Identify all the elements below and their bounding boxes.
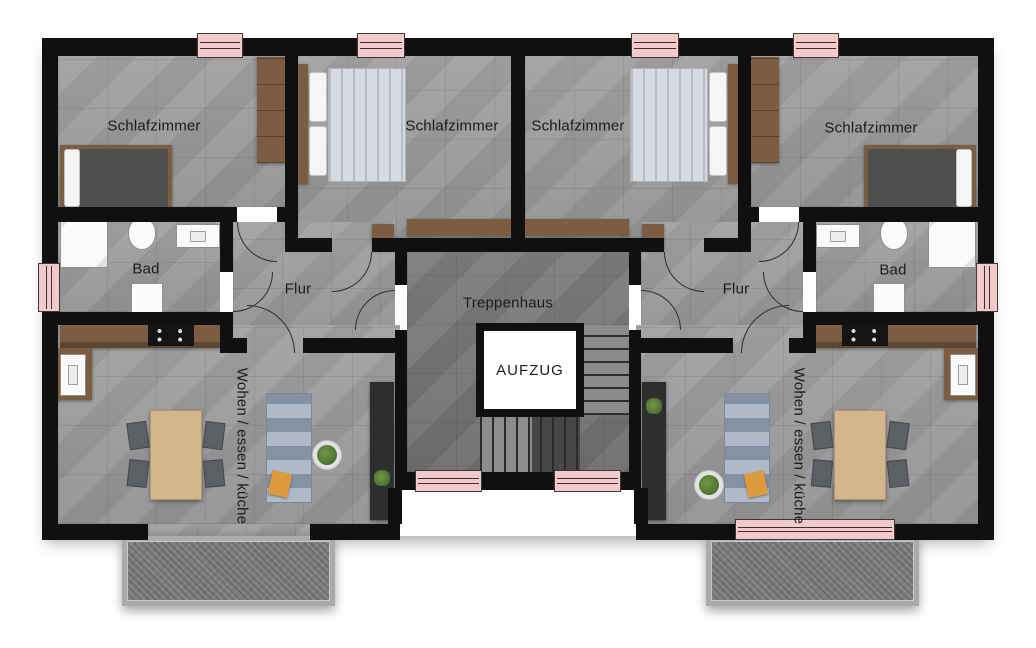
door-arc-living-left (247, 305, 295, 353)
wall-stairwell-bottom-b (482, 472, 554, 490)
dresser-right (525, 219, 629, 236)
room-label-bedroom-left-inner: Schlafzimmer (405, 118, 498, 135)
window-balcony-right (735, 519, 895, 540)
wall-connector-right (634, 488, 648, 524)
wall-connector-left (388, 488, 402, 524)
stairs-lower-flight (480, 415, 580, 472)
wall-bedroom-left-outer-bottom-a (42, 207, 237, 222)
window-top-2 (357, 33, 405, 58)
chair-left-1 (126, 421, 150, 451)
wall-stairwell-left-a (395, 252, 407, 285)
door-arc-living-right (741, 305, 789, 353)
wall-bedroom-right-outer-bottom-b (799, 207, 994, 222)
wall-bedroom-left-outer-bottom-b (277, 207, 298, 222)
double-bed-right-pillow-1 (709, 72, 727, 122)
wall-bedrooms-center-divider (511, 56, 525, 238)
sink-right (816, 224, 860, 248)
room-label-bath-right: Bad (879, 262, 906, 279)
wall-bottom-right-a (636, 524, 735, 540)
floor-plan: AUFZUG (0, 0, 1036, 648)
double-bed-right-mattress (630, 68, 708, 182)
wall-bath-right-bottom (803, 312, 994, 325)
double-bed-right-headboard (728, 64, 738, 184)
sideboard-plant-left (374, 470, 390, 486)
double-bed-right-pillow-2 (709, 126, 727, 176)
wall-top (42, 38, 994, 56)
dining-table-left (150, 410, 202, 500)
washing-machine-right (873, 283, 905, 314)
room-label-bedroom-right-inner: Schlafzimmer (531, 118, 624, 135)
cooktop-right (842, 323, 888, 346)
kitchen-sink-right (950, 354, 976, 396)
wall-bedrooms-inner-bottom-c (704, 238, 738, 252)
window-top-1 (197, 33, 243, 58)
wall-bottom-left-a (42, 524, 148, 540)
wall-bottom-left-b (310, 524, 400, 540)
chair-left-2 (127, 459, 150, 488)
room-label-hall-left: Flur (285, 281, 312, 298)
chair-right-2 (887, 459, 910, 488)
wall-hall-living-right-main (636, 338, 733, 353)
wall-stairwell-right-a (629, 252, 641, 285)
cooktop-left (148, 323, 194, 346)
wall-hall-living-right-stub (789, 338, 803, 353)
dining-table-right (834, 410, 886, 500)
elevator-label: AUFZUG (484, 331, 576, 409)
wardrobe-right (749, 57, 779, 163)
door-arc-bedroom-right-outer (759, 222, 799, 262)
shower-left (60, 216, 108, 268)
single-bed-left-pillow (64, 149, 80, 207)
shower-right (928, 216, 976, 268)
double-bed-left-mattress (328, 68, 406, 182)
double-bed-left-headboard (298, 64, 308, 184)
chair-right-3 (810, 421, 833, 450)
chair-left-3 (202, 421, 225, 450)
double-bed-left-pillow-1 (309, 72, 327, 122)
room-floor-living-left (58, 325, 400, 524)
wall-hall-living-left-stub (233, 338, 247, 353)
chair-right-4 (811, 459, 833, 488)
sink-left (176, 224, 220, 248)
stairs-upper-flight (582, 325, 629, 415)
wardrobe-left (257, 57, 287, 163)
door-arc-entry-left (355, 290, 395, 330)
room-label-bedroom-right-outer: Schlafzimmer (824, 120, 917, 137)
door-arc-bedroom-right-inner (664, 252, 704, 292)
wall-bedroom-right-outer-bottom-a (738, 207, 759, 222)
kitchen-sink-left (60, 354, 86, 396)
wall-bath-right-side (803, 222, 816, 272)
room-label-bedroom-left-outer: Schlafzimmer (107, 118, 200, 135)
chair-right-1 (886, 421, 910, 451)
single-bed-right-pillow (956, 149, 972, 207)
wall-bottom-right-b (895, 524, 994, 540)
balcony-right (706, 536, 919, 606)
room-label-hall-right: Flur (723, 281, 750, 298)
sideboard-plant-right (646, 398, 662, 414)
door-arc-entry-right (641, 290, 681, 330)
wall-bedrooms-right-divider (738, 56, 751, 252)
chair-left-4 (203, 459, 225, 488)
room-label-living-left: Wohen / essen / küche (234, 368, 251, 525)
single-bed-right-blanket (868, 149, 956, 207)
plant-right (694, 470, 724, 500)
dresser-left (407, 219, 511, 236)
toilet-right (880, 218, 908, 250)
single-bed-left-blanket (80, 149, 168, 207)
window-stairwell-2 (554, 470, 621, 492)
door-arc-bedroom-left-outer (237, 222, 277, 262)
wall-hall-living-left-main (303, 338, 400, 353)
plant-left (312, 440, 342, 470)
room-label-stairwell: Treppenhaus (463, 295, 553, 312)
wall-bedrooms-inner-bottom-a (298, 238, 332, 252)
double-bed-left-pillow-2 (309, 126, 327, 176)
elevator: AUFZUG (476, 323, 584, 417)
room-label-bath-left: Bad (132, 261, 159, 278)
window-top-3 (631, 33, 679, 58)
window-top-4 (793, 33, 839, 58)
wall-bedrooms-left-divider (285, 56, 298, 252)
balcony-left (122, 536, 335, 606)
wall-bath-left-side (220, 222, 233, 272)
wall-bedrooms-inner-bottom-b (372, 238, 664, 252)
window-right-wall (976, 263, 998, 312)
door-arc-bedroom-left-inner (332, 252, 372, 292)
window-left-wall (38, 263, 60, 312)
wall-bath-left-bottom (42, 312, 233, 325)
room-label-living-right: Wohen / essen / küche (791, 368, 808, 525)
window-stairwell-1 (415, 470, 482, 492)
toilet-left (128, 218, 156, 250)
washing-machine-left (131, 283, 163, 314)
